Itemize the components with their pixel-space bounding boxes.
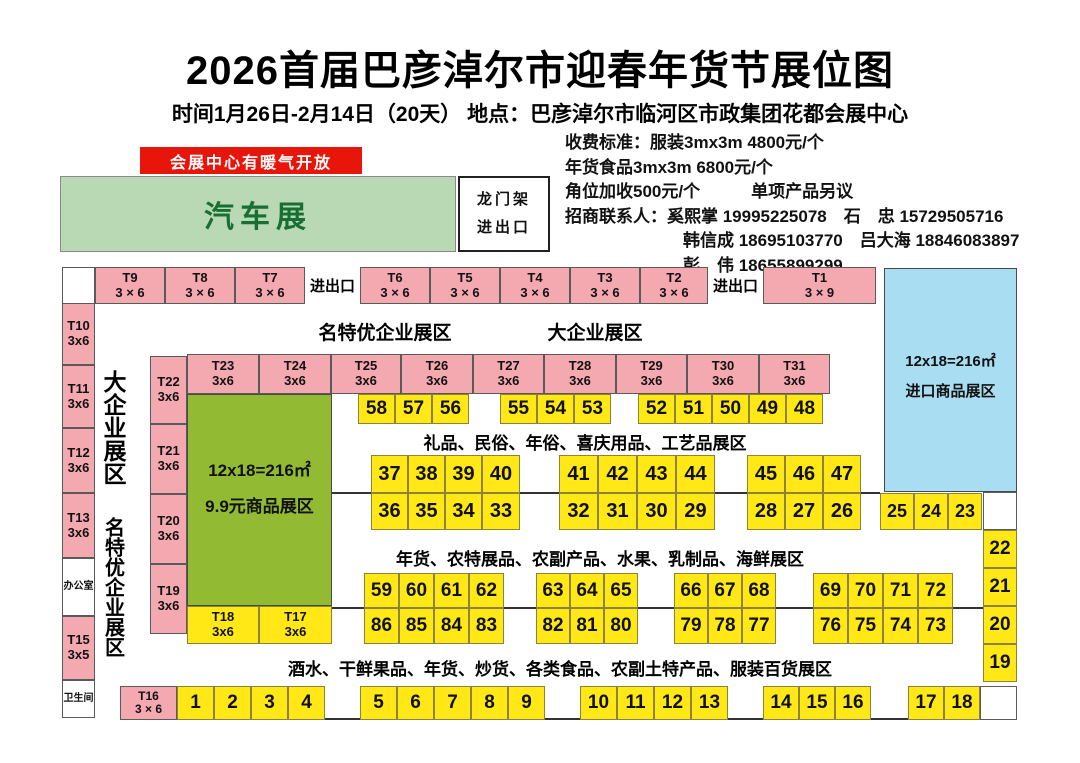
booth-58: 58 (358, 394, 395, 424)
booth-T21: T213x6 (150, 424, 187, 494)
booth-59: 59 (364, 573, 399, 608)
booth-10: 10 (580, 686, 617, 720)
booth-80: 80 (604, 608, 638, 644)
booth-T10: T103x6 (62, 303, 95, 365)
entrance-exit-label: 进出口 (305, 267, 360, 304)
spacer-cell (983, 492, 1017, 530)
booth-T8: T83 × 6 (165, 267, 235, 304)
booth-20: 20 (983, 606, 1017, 644)
booth-T16: T163 × 6 (120, 686, 177, 720)
area-label-famous-vertical: 名特优企业展区 (96, 512, 130, 662)
booth-37: 37 (371, 455, 408, 493)
booth-T31: T313x6 (759, 354, 830, 394)
booth-64: 64 (570, 573, 604, 608)
booth-32: 32 (559, 493, 598, 530)
booth-T11: T113x6 (62, 365, 95, 428)
booth-3: 3 (251, 686, 288, 720)
booth-T28: T283x6 (544, 354, 616, 394)
booth-81: 81 (570, 608, 604, 644)
booth-85: 85 (399, 608, 434, 644)
booth-33: 33 (482, 493, 520, 530)
booth-23: 23 (948, 493, 982, 530)
booth-30: 30 (637, 493, 676, 530)
booth-60: 60 (399, 573, 434, 608)
booth-35: 35 (408, 493, 445, 530)
booth-T7: T73 × 6 (235, 267, 305, 304)
booth-T17: T173x6 (259, 606, 332, 644)
booth-15: 15 (799, 686, 835, 720)
booth-76: 76 (813, 608, 848, 644)
booth-T2: T23 × 6 (640, 267, 708, 304)
booth-54: 54 (537, 394, 574, 424)
booth-22: 22 (983, 530, 1017, 568)
booth-8: 8 (471, 686, 508, 720)
office-cell: 办公室 (62, 558, 95, 616)
booth-56: 56 (432, 394, 469, 424)
booth-79: 79 (674, 608, 708, 644)
booth-17: 17 (908, 686, 944, 720)
booth-77: 77 (742, 608, 776, 644)
booth-12: 12 (654, 686, 691, 720)
wall-line (638, 607, 674, 609)
booth-39: 39 (445, 455, 482, 493)
booth-82: 82 (536, 608, 570, 644)
booth-7: 7 (434, 686, 471, 720)
booth-43: 43 (637, 455, 676, 493)
booth-25: 25 (880, 493, 914, 530)
booth-47: 47 (823, 455, 861, 493)
booth-52: 52 (638, 394, 675, 424)
booth-44: 44 (676, 455, 715, 493)
wall-line (953, 607, 983, 609)
zone-label-drinks: 酒水、干鲜果品、年货、炒货、各类食品、农副土特产品、服装百货展区 (230, 656, 890, 678)
booth-T18: T183x6 (187, 606, 259, 644)
booth-63: 63 (536, 573, 570, 608)
booth-62: 62 (469, 573, 504, 608)
wall-line (728, 718, 763, 720)
wall-line (776, 607, 813, 609)
booth-2: 2 (214, 686, 251, 720)
booth-68: 68 (742, 573, 776, 608)
wall-line (861, 492, 880, 494)
booth-T3: T33 × 6 (570, 267, 640, 304)
booth-T25: T253x6 (331, 354, 401, 394)
corner-cell (62, 267, 95, 304)
booth-9: 9 (508, 686, 545, 720)
booth-84: 84 (434, 608, 469, 644)
booth-1: 1 (177, 686, 214, 720)
booth-61: 61 (434, 573, 469, 608)
area-label-large: 大企业展区 (520, 318, 670, 344)
wall-line (325, 718, 360, 720)
booth-T15: T153x5 (62, 616, 95, 680)
booth-T24: T243x6 (259, 354, 331, 394)
booth-map-poster: { "header": { "title": "2026首届巴彦淖尔市迎春年货节… (0, 0, 1080, 763)
zone-label-newyear-goods: 年货、农特展品、农副产品、水果、乳制品、海鲜展区 (345, 546, 855, 568)
booth-69: 69 (813, 573, 848, 608)
booth-73: 73 (918, 608, 953, 644)
booth-72: 72 (918, 573, 953, 608)
booth-86: 86 (364, 608, 399, 644)
booth-14: 14 (763, 686, 799, 720)
booth-T9: T93 × 6 (95, 267, 165, 304)
booth-T29: T293x6 (616, 354, 687, 394)
wall-line (504, 607, 536, 609)
imported-goods-zone: 12x18=216㎡进口商品展区 (884, 268, 1017, 492)
booth-T27: T273x6 (473, 354, 544, 394)
booth-41: 41 (559, 455, 598, 493)
booth-28: 28 (747, 493, 785, 530)
booth-T19: T193x6 (150, 564, 187, 634)
wall-line (332, 492, 371, 494)
booth-11: 11 (617, 686, 654, 720)
booth-4: 4 (288, 686, 325, 720)
booth-48: 48 (786, 394, 823, 424)
booth-34: 34 (445, 493, 482, 530)
booth-40: 40 (482, 455, 520, 493)
booth-T12: T123x6 (62, 428, 95, 493)
booth-27: 27 (785, 493, 823, 530)
booth-T26: T263x6 (401, 354, 473, 394)
booth-65: 65 (604, 573, 638, 608)
booth-75: 75 (848, 608, 883, 644)
booth-78: 78 (708, 608, 742, 644)
booth-70: 70 (848, 573, 883, 608)
booth-18: 18 (944, 686, 980, 720)
booth-66: 66 (674, 573, 708, 608)
booth-5: 5 (360, 686, 397, 720)
booth-74: 74 (883, 608, 918, 644)
floor-plan: T93 × 6T83 × 6T73 × 6进出口T63 × 6T53 × 6T4… (0, 0, 1080, 763)
booth-67: 67 (708, 573, 742, 608)
booth-31: 31 (598, 493, 637, 530)
booth-53: 53 (574, 394, 611, 424)
wall-line (332, 607, 364, 609)
booth-T4: T43 × 6 (500, 267, 570, 304)
booth-50: 50 (712, 394, 749, 424)
booth-T23: T233x6 (187, 354, 259, 394)
booth-16: 16 (835, 686, 871, 720)
booth-21: 21 (983, 568, 1017, 606)
booth-T22: T223x6 (150, 356, 187, 424)
booth-24: 24 (914, 493, 948, 530)
booth-83: 83 (469, 608, 504, 644)
discount-goods-zone: 12x18=216㎡9.9元商品展区 (187, 394, 332, 606)
booth-49: 49 (749, 394, 786, 424)
booth-26: 26 (823, 493, 861, 530)
area-label-famous: 名特优企业展区 (300, 318, 470, 344)
booth-55: 55 (500, 394, 537, 424)
booth-T20: T203x6 (150, 494, 187, 564)
booth-T6: T63 × 6 (360, 267, 430, 304)
area-label-large-vertical: 大企业展区 (96, 352, 130, 502)
booth-T30: T303x6 (687, 354, 759, 394)
booth-6: 6 (397, 686, 434, 720)
booth-45: 45 (747, 455, 785, 493)
booth-13: 13 (691, 686, 728, 720)
booth-46: 46 (785, 455, 823, 493)
spacer-cell (980, 686, 1017, 720)
wall-line (520, 492, 559, 494)
booth-51: 51 (675, 394, 712, 424)
entrance-exit-label: 进出口 (708, 267, 763, 304)
wall-line (871, 718, 908, 720)
booth-57: 57 (395, 394, 432, 424)
booth-42: 42 (598, 455, 637, 493)
wall-line (715, 492, 747, 494)
zone-label-gifts: 礼品、民俗、年俗、喜庆用品、工艺品展区 (330, 430, 840, 452)
booth-T1: T13 × 9 (763, 267, 876, 304)
booth-29: 29 (676, 493, 715, 530)
booth-T5: T53 × 6 (430, 267, 500, 304)
toilet-cell: 卫生间 (62, 680, 95, 718)
booth-38: 38 (408, 455, 445, 493)
wall-line (545, 718, 580, 720)
booth-36: 36 (371, 493, 408, 530)
booth-19: 19 (983, 644, 1017, 682)
booth-T13: T133x6 (62, 493, 95, 558)
booth-71: 71 (883, 573, 918, 608)
